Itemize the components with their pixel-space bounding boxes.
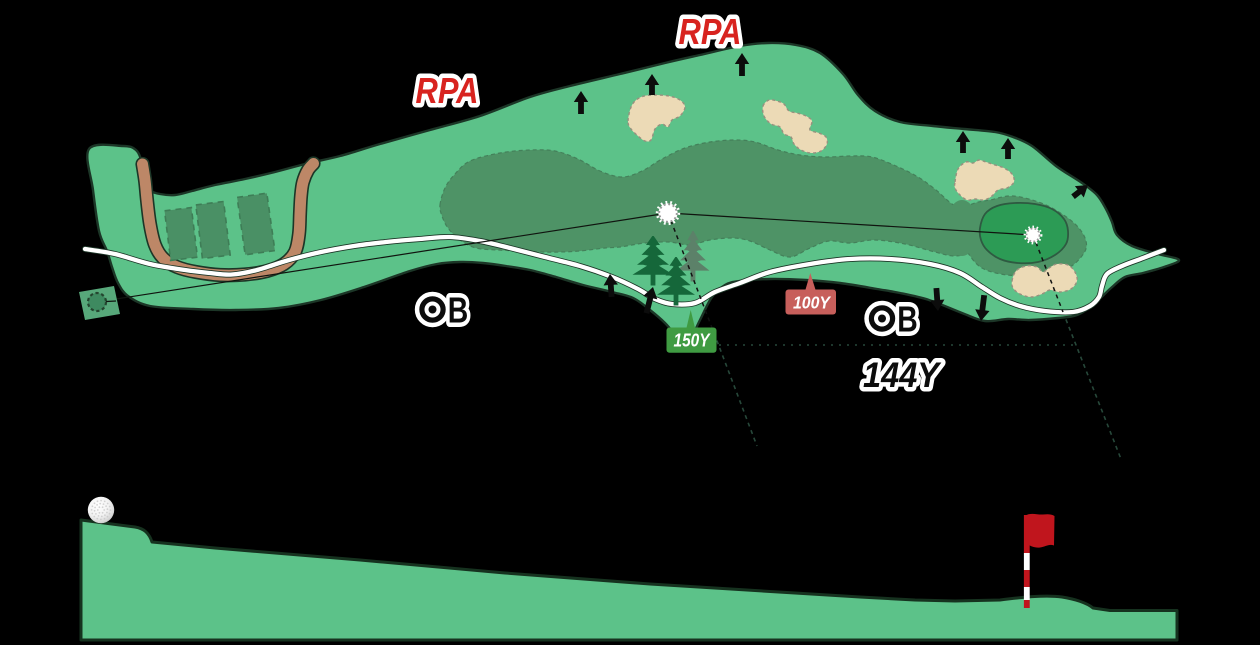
- svg-text:144Y: 144Y: [863, 356, 941, 395]
- svg-text:RPA: RPA: [416, 70, 479, 111]
- svg-text:B: B: [448, 290, 469, 331]
- svg-text:150Y: 150Y: [674, 331, 712, 351]
- svg-text:B: B: [897, 299, 918, 340]
- svg-text:RPA: RPA: [679, 11, 742, 52]
- svg-text:100Y: 100Y: [793, 293, 831, 313]
